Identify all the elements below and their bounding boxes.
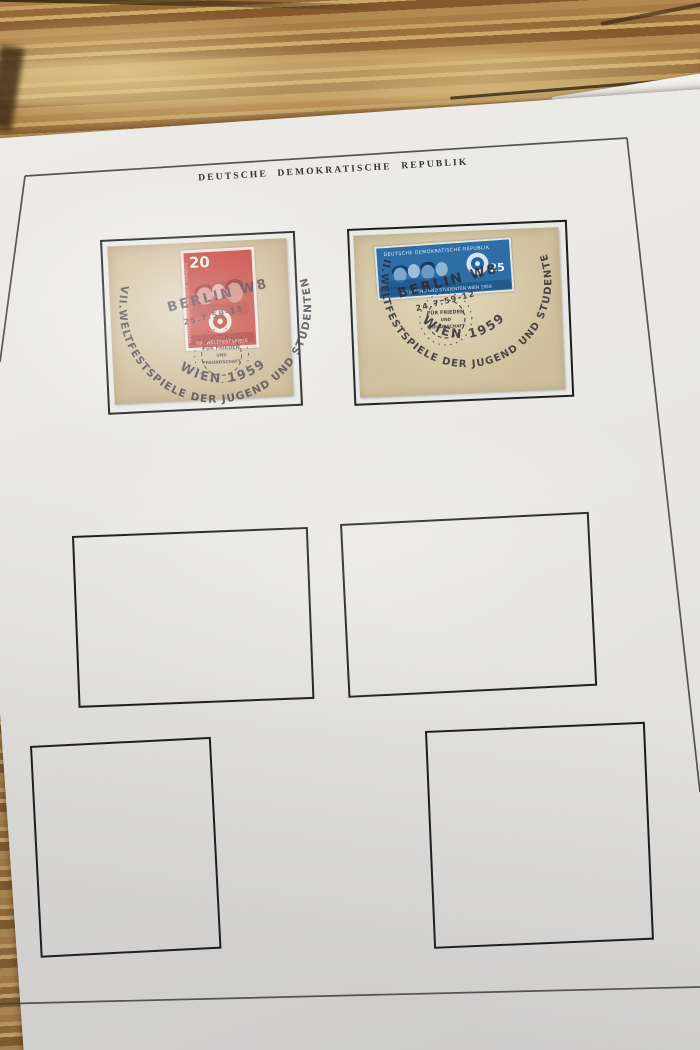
postmark-left: VII.WELTFESTSPIELE DER JUGEND UND STUDEN… [92, 237, 353, 484]
empty-stamp-box-bottom-right [425, 722, 654, 949]
photo-scene: DEUTSCHE DEMOKRATISCHE REPUBLIK 20 DEUTS… [0, 0, 700, 1050]
postmark-center-line: FREUNDSCHAFT [203, 358, 241, 365]
postmark-right: VII.WELTFESTSPIELE DER JUGEND UND STUDEN… [343, 229, 602, 464]
stamp-box-top-right: DEUTSCHE DEMOKRATISCHE REPUBLIK 25 DER J… [347, 220, 574, 406]
postmark-center-line: FÜR FRIEDEN [202, 344, 240, 353]
empty-stamp-box-mid-right [340, 512, 597, 698]
empty-stamp-box-mid-left [72, 527, 314, 708]
empty-stamp-box-bottom-left [30, 737, 221, 958]
postmark-center-line: FÜR FRIEDEN [427, 308, 465, 317]
stamp-box-top-left: 20 DEUTSCHE DEMOKRATISCHE REPUBLIK VII. … [100, 231, 303, 415]
postmark-center-line: UND [216, 352, 227, 358]
postmark-center-line: UND [441, 317, 452, 322]
